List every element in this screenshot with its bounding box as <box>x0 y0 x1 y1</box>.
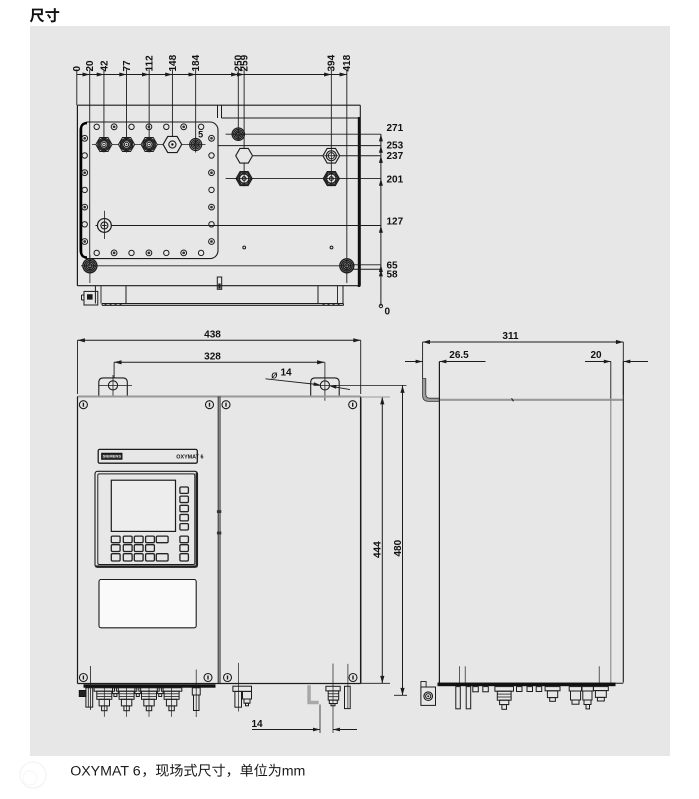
svg-text:26.5: 26.5 <box>449 350 469 361</box>
svg-text:271: 271 <box>387 123 404 134</box>
svg-text:201: 201 <box>387 174 404 185</box>
svg-text:184: 184 <box>191 54 202 71</box>
svg-text:127: 127 <box>387 217 404 228</box>
svg-text:5: 5 <box>198 130 203 140</box>
svg-text:14: 14 <box>281 368 293 379</box>
svg-text:480: 480 <box>393 539 404 556</box>
svg-text:mm: mm <box>282 764 306 780</box>
svg-text:0: 0 <box>72 66 83 72</box>
svg-text:77: 77 <box>122 60 133 72</box>
svg-text:112: 112 <box>145 55 156 72</box>
svg-text:148: 148 <box>168 54 179 71</box>
svg-text:0: 0 <box>385 307 391 318</box>
svg-text:14: 14 <box>252 719 264 730</box>
svg-text:237: 237 <box>387 151 404 162</box>
svg-text:259: 259 <box>240 54 251 71</box>
svg-text:444: 444 <box>373 541 384 558</box>
svg-text:394: 394 <box>327 54 338 71</box>
svg-text:OXYMAT 6: OXYMAT 6 <box>176 455 203 461</box>
svg-text:42: 42 <box>99 60 110 72</box>
svg-text:20: 20 <box>85 60 96 72</box>
svg-text:SIEMENS: SIEMENS <box>103 454 122 459</box>
svg-text:20: 20 <box>590 350 602 361</box>
svg-text:438: 438 <box>204 329 221 340</box>
svg-text:253: 253 <box>387 141 404 152</box>
svg-text:OXYMAT 6: OXYMAT 6 <box>70 764 141 780</box>
svg-text:311: 311 <box>502 331 519 342</box>
svg-text:328: 328 <box>204 351 221 362</box>
svg-text:58: 58 <box>387 270 399 281</box>
svg-text:418: 418 <box>342 54 353 71</box>
